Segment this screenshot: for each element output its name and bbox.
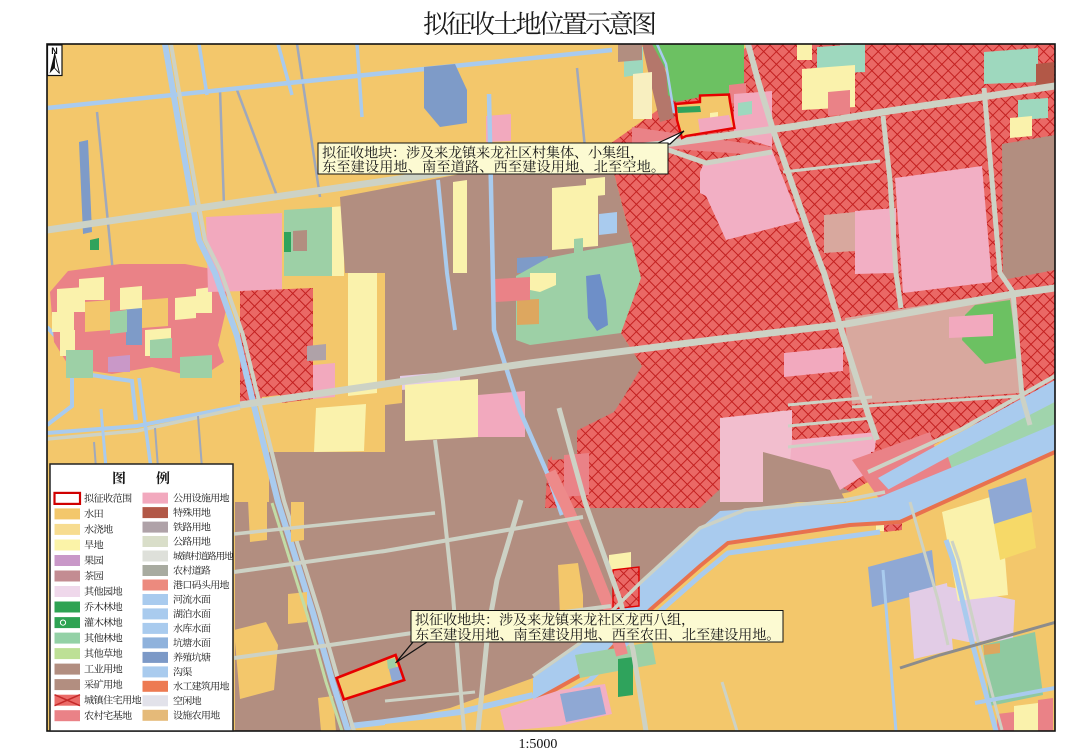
svg-text:1:5000: 1:5000 (519, 737, 558, 752)
